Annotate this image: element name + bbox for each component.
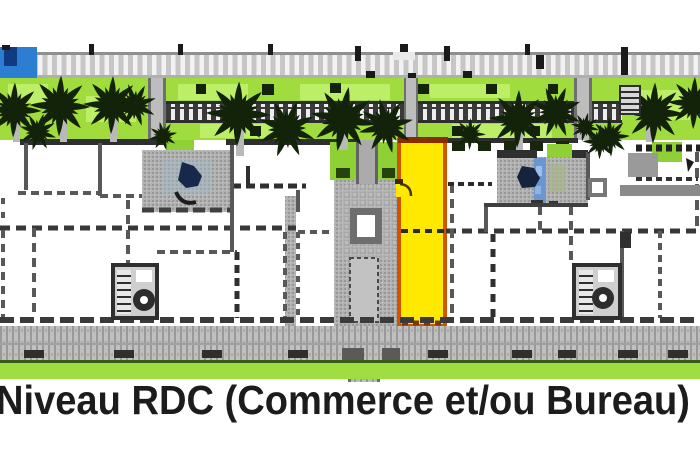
svg-text:Niveau RDC (Commerce et/ou Bur: Niveau RDC (Commerce et/ou Bureau) bbox=[0, 377, 690, 423]
